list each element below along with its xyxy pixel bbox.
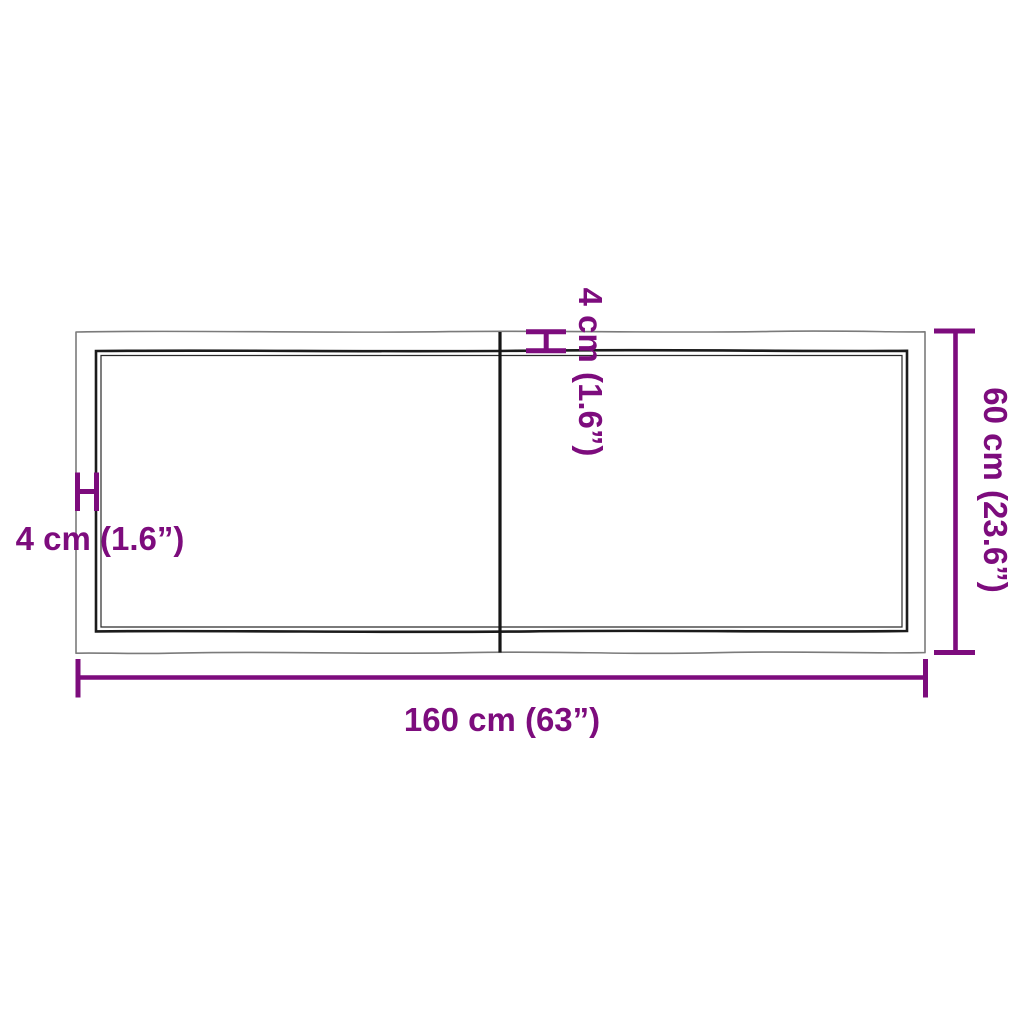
- width-dimension-label: 160 cm (63”): [404, 701, 600, 738]
- tabletop-dimension-diagram: 160 cm (63”) 60 cm (23.6”) 4 cm (1.6”) 4…: [0, 0, 1024, 1024]
- depth-dimension-label: 60 cm (23.6”): [977, 387, 1014, 592]
- thickness-side-label: 4 cm (1.6”): [16, 520, 185, 557]
- diagram-canvas: 160 cm (63”) 60 cm (23.6”) 4 cm (1.6”) 4…: [0, 0, 1024, 1024]
- thickness-top-label: 4 cm (1.6”): [572, 288, 609, 457]
